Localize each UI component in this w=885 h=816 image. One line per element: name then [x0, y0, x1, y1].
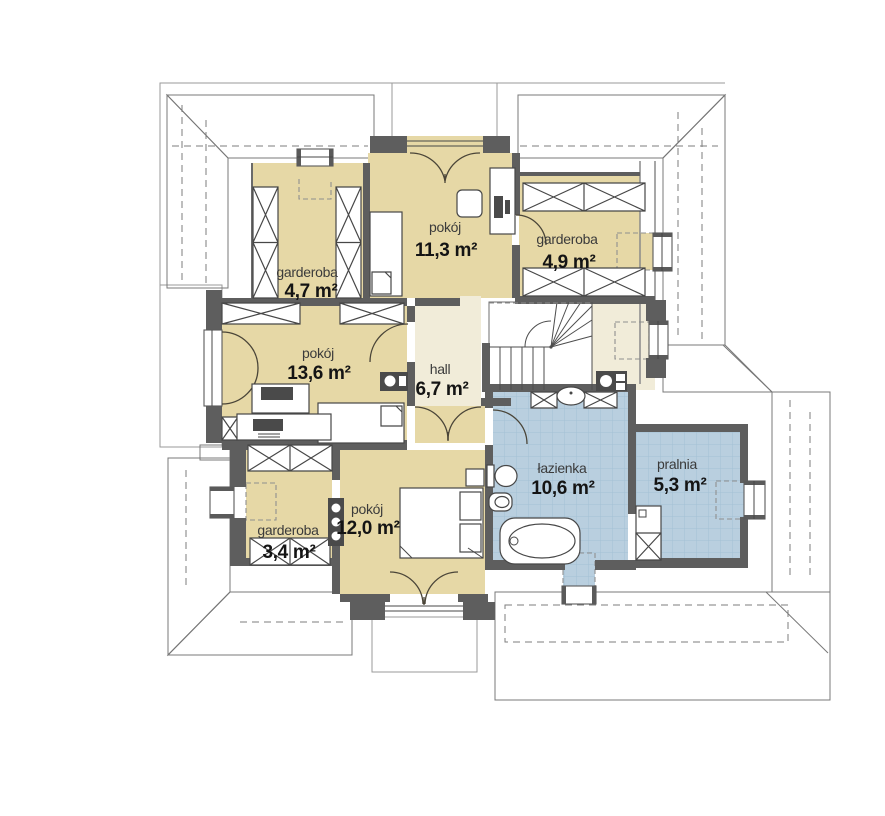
room-label: hall — [430, 361, 451, 377]
room-area: 12,0 m² — [336, 518, 399, 539]
roof-south-east-bottom — [495, 592, 830, 700]
floor-vestibule — [415, 406, 485, 443]
room-area: 4,9 m² — [542, 252, 595, 273]
balcony-door-icon — [204, 330, 222, 406]
bathtub-icon — [500, 518, 580, 564]
floor-niche-stairs — [615, 322, 649, 359]
window-icon — [562, 586, 596, 604]
wall-pier — [483, 136, 510, 153]
printer-icon — [261, 387, 293, 400]
floor-plan-svg: garderoba 4,7 m² pokój 11,3 m² garderoba… — [0, 0, 885, 816]
room-label: pokój — [302, 345, 334, 361]
roof-west — [167, 95, 228, 288]
room-area: 5,3 m² — [653, 475, 706, 496]
washing-machine-icon — [636, 506, 661, 560]
chair-icon — [457, 190, 482, 217]
window-icon — [744, 481, 765, 519]
floor-niche-garderoba-sw — [246, 483, 276, 520]
room-label: pralnia — [657, 456, 697, 472]
nightstand-icon — [466, 469, 484, 486]
room-area: 11,3 m² — [415, 240, 477, 261]
roof-south-west-bottom — [168, 592, 352, 655]
floor-niche-garderoba-ne — [617, 233, 655, 270]
wall-pier — [646, 300, 666, 321]
room-label: łazienka — [538, 460, 587, 476]
room-label: garderoba — [276, 264, 338, 280]
floor-plan-page: garderoba 4,7 m² pokój 11,3 m² garderoba… — [0, 0, 885, 816]
wall-pier — [350, 602, 385, 620]
roof-south-east-upper — [663, 345, 772, 392]
computer-icon — [253, 419, 283, 431]
roof-south-east-side — [772, 392, 830, 592]
room-label: garderoba — [536, 231, 598, 247]
roof-east — [663, 95, 725, 345]
room-label: garderoba — [257, 522, 319, 538]
room-area: 3,4 m² — [262, 542, 315, 563]
balcony-south — [372, 617, 477, 672]
wall-pier — [370, 136, 407, 153]
window-icon — [210, 487, 234, 518]
window-icon — [649, 321, 668, 359]
room-area: 4,7 m² — [284, 281, 337, 302]
window-icon — [297, 149, 333, 166]
washbasin-icon — [557, 387, 585, 405]
room-label: pokój — [429, 219, 461, 235]
dormer-north — [392, 83, 497, 138]
wall-pier — [646, 358, 666, 378]
toilet-icon — [487, 465, 517, 487]
bidet-icon — [489, 493, 512, 511]
floor-stairs — [489, 302, 592, 390]
room-label: pokój — [351, 501, 383, 517]
room-area: 13,6 m² — [287, 363, 350, 384]
window-icon — [653, 233, 672, 271]
wall-pier — [206, 290, 222, 330]
floor-niche-pralnia — [716, 481, 745, 519]
room-area: 10,6 m² — [531, 478, 594, 499]
wall-pier — [463, 602, 495, 620]
wall-pier — [206, 406, 222, 443]
room-area: 6,7 m² — [415, 379, 468, 400]
